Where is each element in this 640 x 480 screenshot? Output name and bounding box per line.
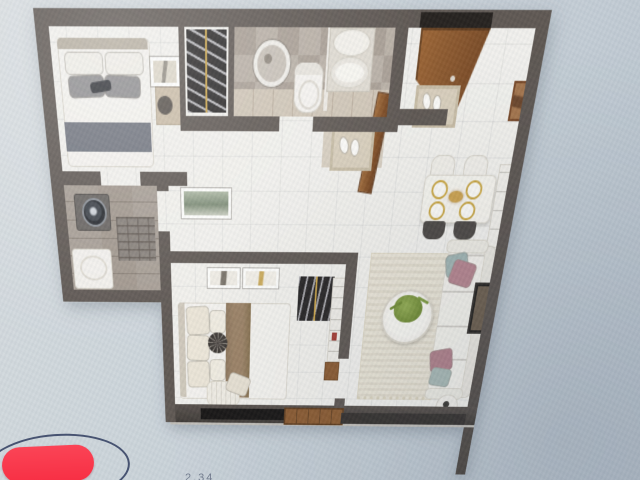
photo-of-floor-plan: 2.34 [0,0,640,480]
wall-utility-east-north [156,172,168,191]
utility-brick-wall [116,217,156,261]
sofa-armrest-north [446,239,490,253]
redaction-pill [1,444,94,480]
wall-bedroom2-north [159,251,358,264]
wall-bedroom1-south-west [50,171,101,185]
wall-entry-dining-stub [386,109,448,126]
bedroom2-medallion-pillow [208,332,228,353]
bedroom2-tv-panel [201,408,292,420]
floor-plan [33,8,552,448]
bedroom2-frame-left [207,268,239,288]
bedroom2-pillow-4 [209,310,226,333]
bedroom2-pillow-2 [187,334,210,361]
partial-dimension-text: 2.34 [185,472,214,480]
wall-bathroom-south-west [180,116,279,131]
dining-chair-north-left [430,155,457,177]
bedroom2-frame-right [243,268,279,288]
bedroom2-shelf-red-item [332,333,338,341]
hallway-landscape-art [181,188,231,219]
bedroom1-pillow-white-right [104,52,144,76]
bedroom1-pillow-white-left [64,52,104,76]
bedroom1-wall-art [150,57,180,86]
dining-chair-north-right [462,155,489,177]
bedroom2-wood-ledge [324,362,340,381]
living-media-console [340,413,466,425]
balcony-threshold [284,408,345,426]
wall-utility-south [62,290,172,303]
bedroom1-desk-chair [157,96,173,115]
entry-door-opening [419,12,493,28]
bedroom2-pillow-5 [210,359,226,381]
bedroom1-headboard [57,38,148,50]
toilet-tank [295,63,323,75]
bedroom2-pillow-1 [186,306,211,336]
bedroom1-throw-blanket [64,122,152,152]
